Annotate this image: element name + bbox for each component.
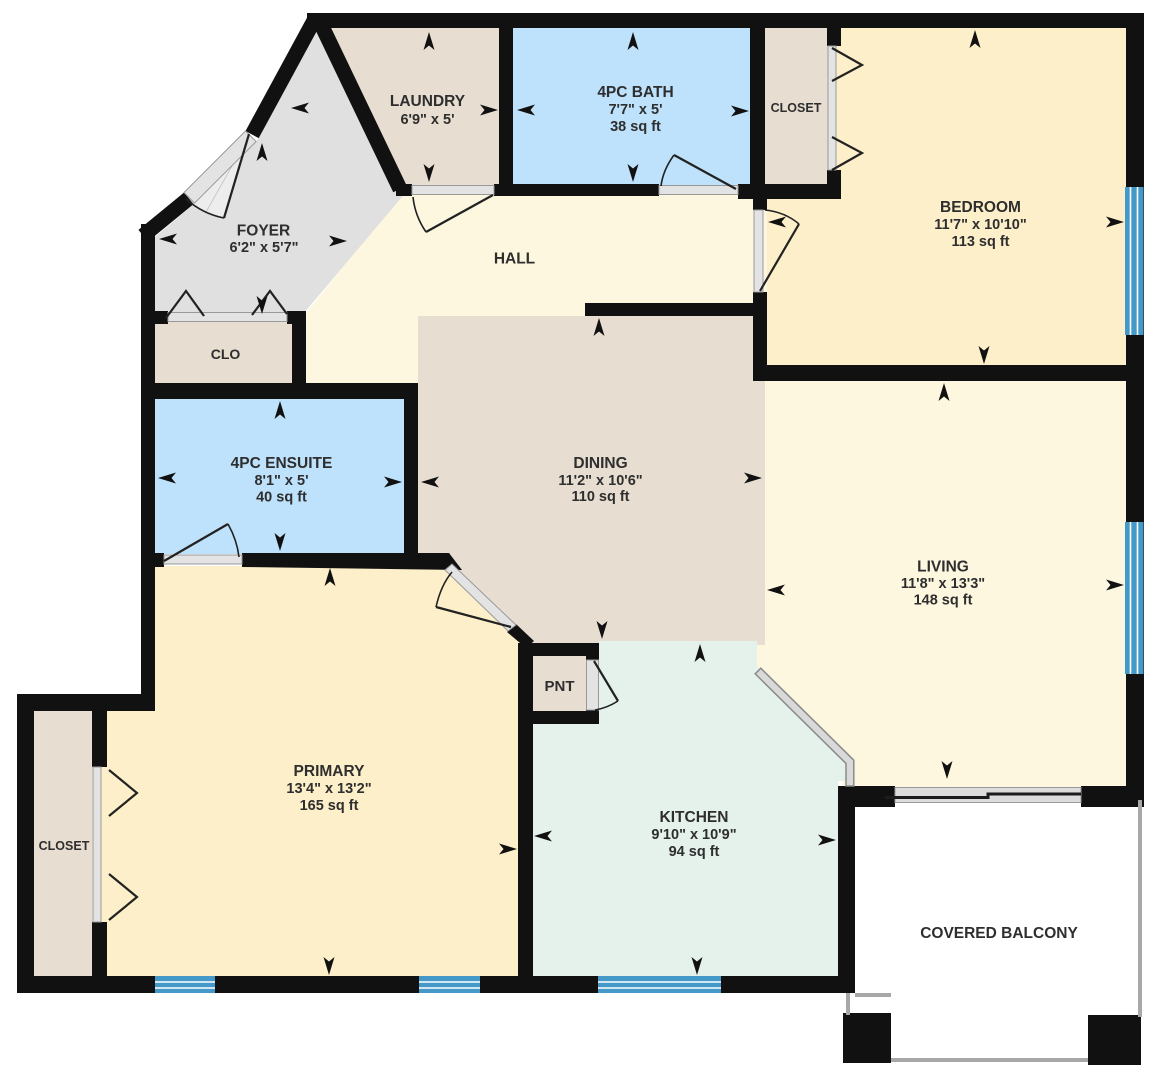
svg-text:CLOSET: CLOSET: [771, 101, 822, 115]
svg-text:4PC BATH: 4PC BATH: [597, 84, 673, 101]
svg-text:38 sq ft: 38 sq ft: [610, 119, 661, 135]
svg-text:11'8" x 13'3": 11'8" x 13'3": [901, 576, 985, 592]
svg-text:KITCHEN: KITCHEN: [660, 809, 729, 826]
svg-text:COVERED BALCONY: COVERED BALCONY: [920, 925, 1078, 942]
svg-text:165 sq ft: 165 sq ft: [300, 798, 359, 814]
svg-text:11'7" x 10'10": 11'7" x 10'10": [934, 217, 1026, 233]
svg-text:11'2" x 10'6": 11'2" x 10'6": [558, 473, 642, 489]
svg-text:113 sq ft: 113 sq ft: [951, 234, 1009, 250]
svg-text:7'7" x 5': 7'7" x 5': [608, 102, 662, 118]
svg-text:LAUNDRY: LAUNDRY: [390, 93, 466, 110]
svg-text:110 sq ft: 110 sq ft: [571, 489, 629, 505]
svg-text:DINING: DINING: [573, 455, 627, 472]
svg-text:PRIMARY: PRIMARY: [294, 763, 366, 780]
svg-text:6'9" x 5': 6'9" x 5': [400, 112, 454, 128]
svg-text:BEDROOM: BEDROOM: [940, 199, 1021, 216]
svg-text:PNT: PNT: [545, 678, 575, 695]
svg-text:9'10" x 10'9": 9'10" x 10'9": [651, 827, 736, 843]
svg-text:4PC ENSUITE: 4PC ENSUITE: [231, 455, 333, 472]
svg-text:LIVING: LIVING: [917, 559, 969, 576]
svg-text:HALL: HALL: [494, 251, 535, 268]
svg-text:148 sq ft: 148 sq ft: [914, 593, 973, 609]
svg-text:CLO: CLO: [211, 346, 241, 362]
svg-text:40 sq ft: 40 sq ft: [256, 490, 307, 506]
svg-text:8'1" x 5': 8'1" x 5': [254, 473, 308, 489]
svg-text:FOYER: FOYER: [237, 223, 290, 240]
svg-text:94 sq ft: 94 sq ft: [669, 844, 720, 860]
svg-text:13'4" x 13'2": 13'4" x 13'2": [286, 781, 371, 797]
svg-text:6'2" x 5'7": 6'2" x 5'7": [229, 240, 298, 256]
svg-text:CLOSET: CLOSET: [39, 839, 90, 853]
